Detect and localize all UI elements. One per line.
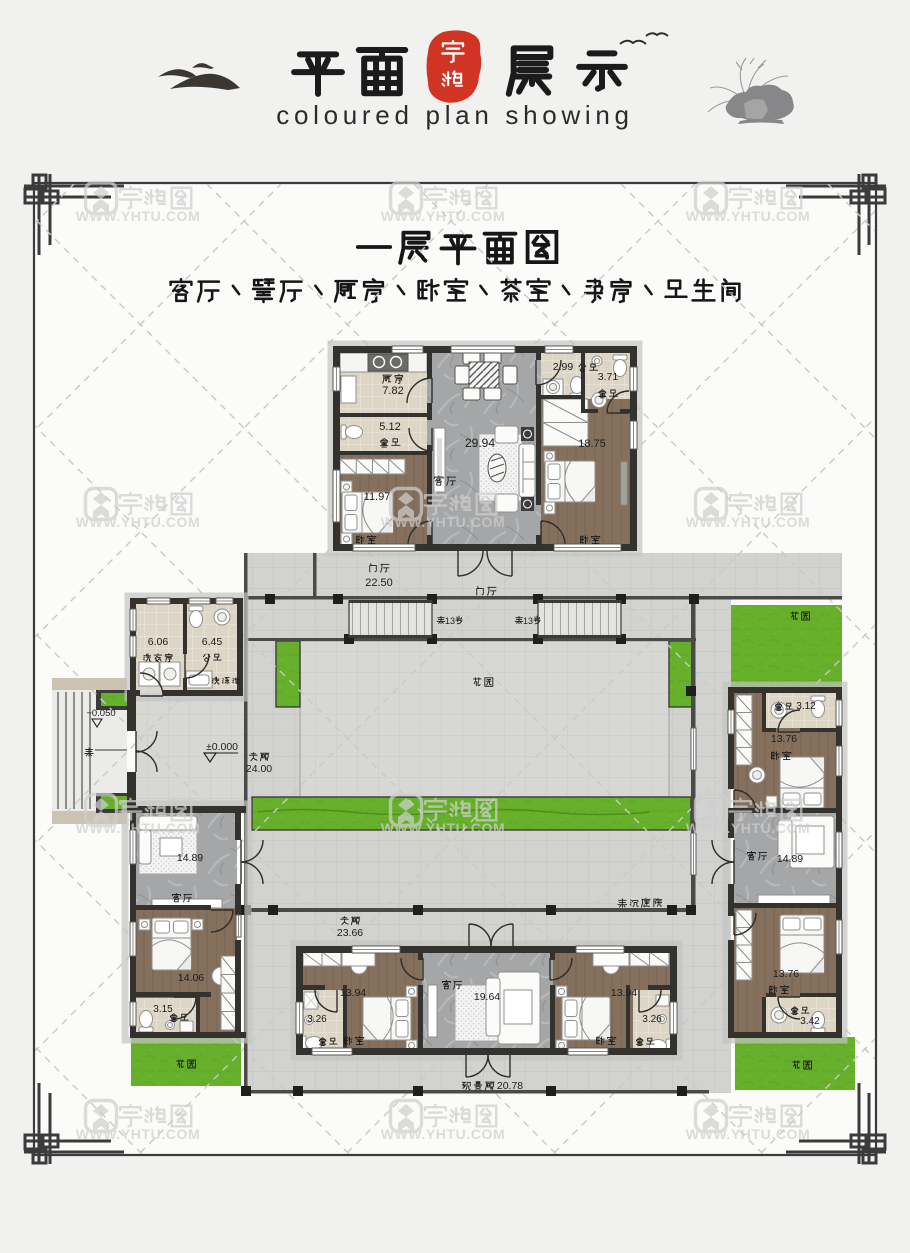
svg-text:13.94: 13.94 [611,987,637,999]
svg-text:7.82: 7.82 [382,385,403,397]
svg-text:WWW.YHTU.COM: WWW.YHTU.COM [686,1126,811,1142]
svg-text:3.71: 3.71 [598,371,619,383]
svg-text:3.26: 3.26 [642,1014,662,1025]
svg-text:5.12: 5.12 [379,421,400,433]
svg-text:13.94: 13.94 [340,987,366,999]
svg-text:WWW.YHTU.COM: WWW.YHTU.COM [381,208,506,224]
svg-text:±0.000: ±0.000 [206,741,238,753]
svg-text:3.12: 3.12 [796,701,816,712]
svg-text:coloured plan showing: coloured plan showing [276,100,633,130]
svg-text:WWW.YHTU.COM: WWW.YHTU.COM [686,514,811,530]
svg-text:WWW.YHTU.COM: WWW.YHTU.COM [76,208,201,224]
svg-text:6.06: 6.06 [148,636,169,648]
svg-text:6.45: 6.45 [202,636,223,648]
svg-text:WWW.YHTU.COM: WWW.YHTU.COM [686,820,811,836]
svg-text:WWW.YHTU.COM: WWW.YHTU.COM [76,1126,201,1142]
svg-text:2.99: 2.99 [553,361,574,373]
svg-text:29.94: 29.94 [465,436,495,450]
svg-text:14.06: 14.06 [178,972,204,984]
svg-text:13.76: 13.76 [773,968,799,980]
svg-text:18.75: 18.75 [578,438,606,450]
svg-text:3.42: 3.42 [800,1016,820,1027]
svg-text:WWW.YHTU.COM: WWW.YHTU.COM [381,1126,506,1142]
svg-text:22.50: 22.50 [365,577,393,589]
svg-text:WWW.YHTU.COM: WWW.YHTU.COM [381,514,506,530]
svg-text:19.64: 19.64 [474,991,500,1003]
svg-text:−0.050: −0.050 [86,708,115,719]
svg-text:14.89: 14.89 [777,853,803,865]
svg-text:24.00: 24.00 [246,763,272,775]
svg-text:WWW.YHTU.COM: WWW.YHTU.COM [76,820,201,836]
svg-text:11.97: 11.97 [364,491,391,503]
svg-text:13: 13 [445,616,455,626]
svg-text:3.15: 3.15 [153,1004,173,1015]
svg-text:23.66: 23.66 [337,927,363,939]
svg-text:14.89: 14.89 [177,852,203,864]
svg-text:20.78: 20.78 [497,1080,523,1092]
svg-text:13.76: 13.76 [771,733,797,745]
svg-text:WWW.YHTU.COM: WWW.YHTU.COM [76,514,201,530]
svg-text:13: 13 [523,616,533,626]
svg-text:3.26: 3.26 [307,1014,327,1025]
svg-text:WWW.YHTU.COM: WWW.YHTU.COM [686,208,811,224]
svg-text:WWW.YHTU.COM: WWW.YHTU.COM [381,820,506,836]
